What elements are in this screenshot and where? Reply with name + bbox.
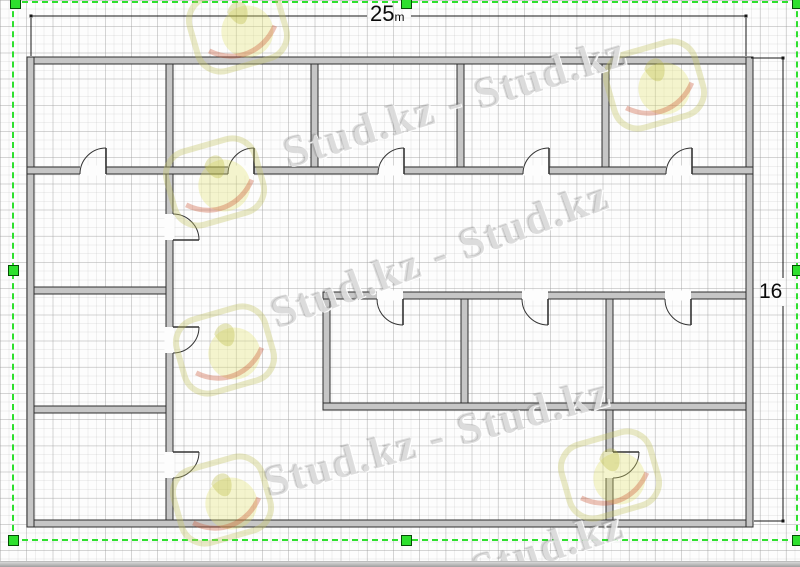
door-opening bbox=[377, 291, 403, 301]
door-arc[interactable] bbox=[173, 452, 199, 478]
door-arc[interactable] bbox=[173, 327, 199, 353]
wall[interactable] bbox=[602, 64, 609, 167]
canvas-bottom-edge bbox=[0, 561, 800, 567]
wall[interactable] bbox=[323, 299, 330, 403]
door-arc[interactable] bbox=[173, 214, 199, 240]
dimension-top-label[interactable]: 25m bbox=[370, 3, 404, 25]
door-opening bbox=[228, 166, 254, 176]
door-opening bbox=[523, 166, 549, 176]
wall[interactable] bbox=[166, 64, 173, 167]
door-opening bbox=[522, 291, 548, 301]
wall[interactable] bbox=[746, 57, 753, 527]
door-arc[interactable] bbox=[665, 299, 691, 325]
wall[interactable] bbox=[461, 299, 468, 403]
dimension-tick bbox=[782, 520, 785, 523]
wall[interactable] bbox=[311, 64, 318, 167]
selection-handle-bottom-left[interactable] bbox=[8, 535, 19, 546]
door-opening bbox=[165, 214, 175, 240]
selection-handle-top-center[interactable] bbox=[401, 0, 412, 9]
door-opening bbox=[165, 327, 175, 353]
dimension-tick bbox=[782, 57, 785, 60]
door-arc[interactable] bbox=[522, 299, 548, 325]
dimension-right-label[interactable]: 16 bbox=[759, 281, 782, 302]
wall[interactable] bbox=[27, 57, 34, 527]
door-opening bbox=[165, 452, 175, 478]
door-opening bbox=[666, 166, 692, 176]
selection-handle-top-left[interactable] bbox=[10, 0, 21, 9]
dimension-right-value: 16 bbox=[759, 280, 782, 303]
door-opening bbox=[665, 291, 691, 301]
wall[interactable] bbox=[27, 57, 753, 64]
dimension-tick bbox=[30, 15, 33, 18]
wall[interactable] bbox=[323, 403, 746, 410]
door-opening bbox=[378, 166, 404, 176]
dimension-tick bbox=[745, 15, 748, 18]
selection-handle-middle-left[interactable] bbox=[8, 265, 19, 276]
door-arc[interactable] bbox=[377, 299, 403, 325]
wall[interactable] bbox=[27, 520, 753, 527]
dimension-top-value: 25 bbox=[370, 1, 394, 26]
wall[interactable] bbox=[457, 64, 464, 167]
wall[interactable] bbox=[34, 406, 166, 413]
wall[interactable] bbox=[34, 287, 166, 294]
wall[interactable] bbox=[606, 299, 613, 403]
floorplan-drawing bbox=[0, 0, 800, 567]
door-arc[interactable] bbox=[613, 452, 639, 478]
floorplan-canvas[interactable]: 25m 16 Stud.kz - Stud.kzStud.kz - Stud.k… bbox=[0, 0, 800, 567]
selection-handle-top-right[interactable] bbox=[792, 0, 800, 9]
door-opening bbox=[605, 452, 615, 478]
selection-handle-bottom-center[interactable] bbox=[401, 535, 412, 546]
selection-handle-middle-right[interactable] bbox=[792, 265, 800, 276]
dimension-top-unit: m bbox=[394, 10, 404, 24]
door-opening bbox=[80, 166, 106, 176]
selection-handle-bottom-right[interactable] bbox=[792, 535, 800, 546]
